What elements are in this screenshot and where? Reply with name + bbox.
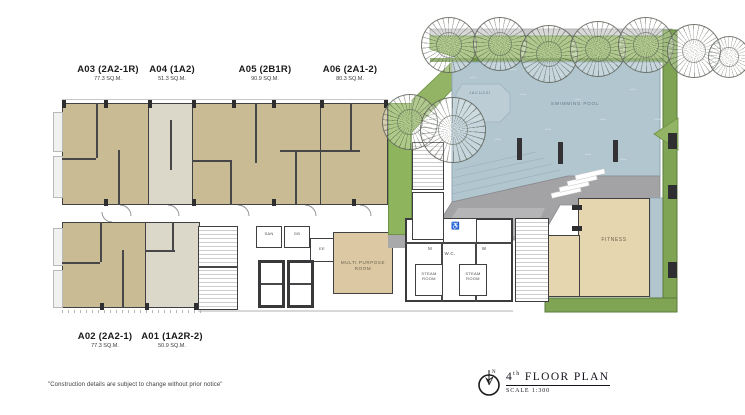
partition-wall — [145, 250, 175, 252]
unit-label-a01: A01 (1A2R-2) 50.9 SQ.M. — [122, 331, 222, 349]
partition-wall — [350, 103, 352, 151]
balcony — [53, 228, 63, 266]
column — [104, 199, 108, 206]
restroom-wall — [405, 242, 513, 244]
balcony — [53, 112, 63, 152]
column — [148, 100, 152, 108]
balcony — [53, 270, 63, 308]
column — [145, 303, 149, 310]
elevator-divider — [290, 283, 311, 285]
san-label: SAN — [256, 231, 282, 236]
partition-wall — [230, 160, 232, 205]
column — [572, 226, 582, 231]
san-room — [256, 226, 282, 248]
tree-icon — [421, 17, 477, 73]
column — [194, 303, 198, 310]
column — [272, 100, 276, 108]
unit-code: A04 (1A2) — [122, 64, 222, 75]
accessible-wc — [443, 218, 477, 244]
bottom-green-border — [545, 298, 677, 312]
stair-left — [198, 226, 238, 310]
column — [100, 303, 104, 310]
column — [572, 205, 582, 210]
womens-label: W — [474, 246, 494, 252]
partition-wall — [122, 250, 124, 308]
fitness-water-strip — [650, 198, 663, 302]
elevator-divider — [261, 283, 282, 285]
swimming-pool-label: SWIMMING POOL — [528, 101, 622, 107]
mens-label: M — [420, 246, 440, 252]
column — [272, 199, 276, 206]
steam-room-label: STEAM ROOM — [415, 271, 443, 282]
svg-text:N: N — [492, 370, 496, 375]
unit-code: A01 (1A2R-2) — [122, 331, 222, 342]
unit-label-a06: A06 (2A1-2) 80.3 SQ.M. — [300, 64, 400, 82]
column — [192, 199, 196, 206]
door-arcs — [102, 205, 371, 222]
wc-label: W.C. — [440, 251, 460, 257]
steam-room-label: STEAM ROOM — [459, 271, 487, 282]
floor-plan-canvas: JACUZZI SWIMMING POOL FITNESS MULTI PURP… — [0, 0, 745, 415]
unit-area: 80.3 SQ.M. — [300, 76, 400, 82]
partition-wall — [172, 222, 174, 252]
unit-area: 51.3 SQ.M. — [122, 76, 222, 82]
partition-wall — [62, 262, 100, 264]
column — [320, 100, 324, 108]
column — [62, 100, 66, 108]
unit-a02 — [62, 222, 147, 308]
partition-wall — [96, 103, 98, 158]
column — [232, 100, 236, 108]
unit-a06 — [320, 103, 388, 205]
north-arrow-icon: N — [477, 367, 503, 399]
unit-a03 — [62, 103, 150, 205]
jacuzzi-label: JACUZZI — [458, 90, 502, 95]
stair-landing-wall — [198, 266, 238, 268]
gb-label: GB — [284, 231, 310, 236]
disclaimer-text: "Construction details are subject to cha… — [48, 382, 328, 388]
fitness-wing — [548, 235, 580, 297]
floor-plan-title: 4th FLOOR PLAN — [506, 371, 610, 386]
top-rail-line — [62, 99, 388, 100]
partition-wall — [255, 103, 257, 163]
partition-wall — [295, 150, 297, 205]
column — [104, 100, 108, 108]
fitness-room — [578, 198, 650, 297]
title-block: 4th FLOOR PLAN SCALE 1:300 — [506, 371, 610, 394]
balcony — [53, 156, 63, 198]
ee-label: EE — [310, 246, 334, 251]
tree-icon — [420, 97, 486, 163]
accessible-icon: ♿ — [451, 222, 460, 230]
partition-wall — [62, 158, 96, 160]
tree-icon — [618, 17, 674, 73]
service-room — [412, 192, 444, 240]
unit-code: A06 (2A1-2) — [300, 64, 400, 75]
tree-icon — [473, 17, 527, 71]
unit-label-a04: A04 (1A2) 51.3 SQ.M. — [122, 64, 222, 82]
column — [192, 100, 196, 108]
dimension-ticks — [62, 310, 202, 313]
unit-area: 50.9 SQ.M. — [122, 343, 222, 349]
partition-wall — [320, 150, 360, 152]
partition-wall — [100, 222, 102, 262]
tree-icon — [708, 36, 745, 78]
partition-wall — [192, 160, 232, 162]
partition-wall — [280, 150, 322, 152]
gb-room — [284, 226, 310, 248]
scale-label: SCALE 1:300 — [506, 388, 610, 394]
column — [352, 199, 356, 206]
unit-a05 — [192, 103, 322, 205]
fitness-label: FITNESS — [578, 237, 650, 244]
stair-right — [515, 218, 549, 302]
multi-purpose-label: MULTI PURPOSE ROOM — [333, 260, 393, 272]
partition-wall — [170, 120, 172, 170]
tree-icon — [520, 25, 578, 83]
partition-wall — [118, 150, 120, 205]
